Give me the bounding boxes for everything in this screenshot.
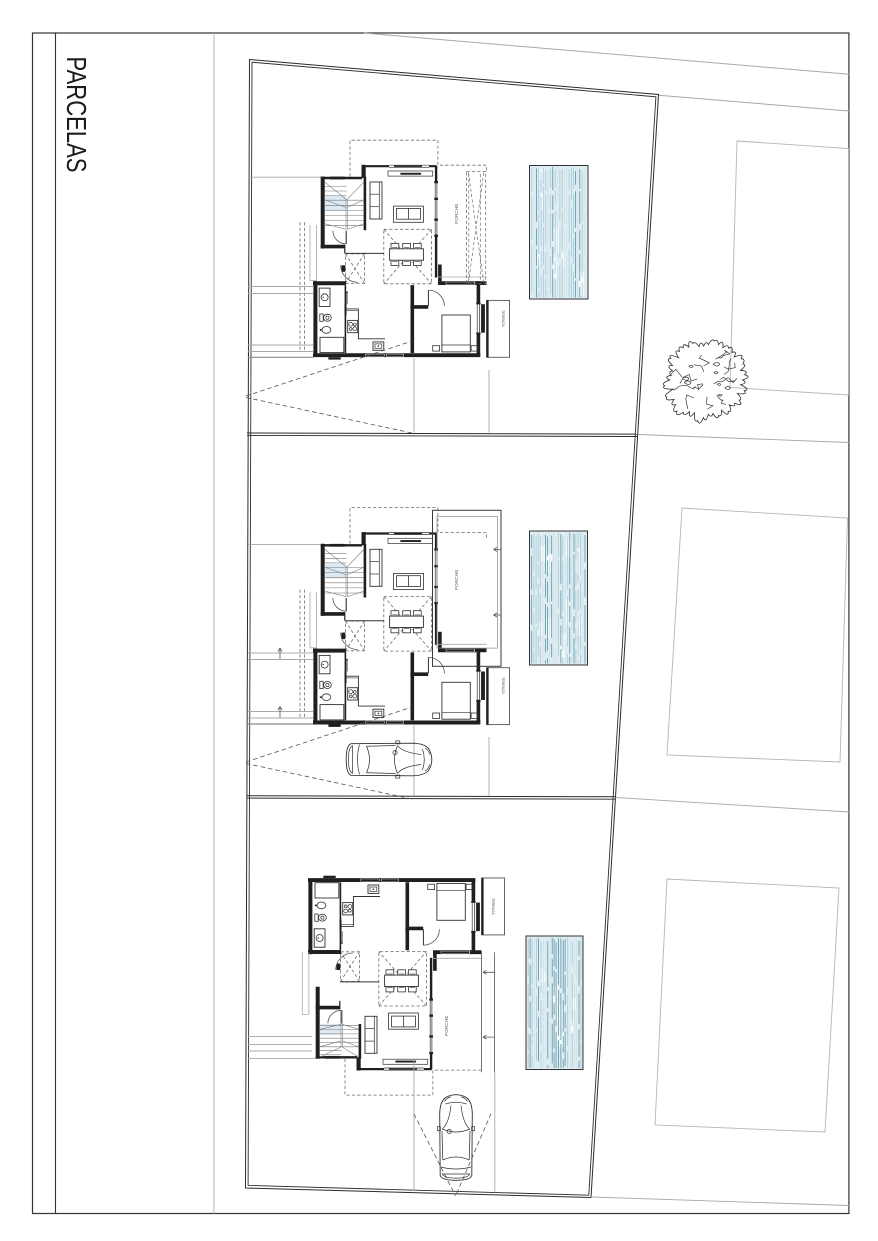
- svg-text:PARCELAS: PARCELAS: [61, 57, 92, 173]
- svg-text:PORCHE: PORCHE: [454, 203, 459, 224]
- svg-text:TERRAZA: TERRAZA: [501, 310, 505, 327]
- svg-text:TERRAZA: TERRAZA: [491, 898, 495, 915]
- svg-text:PORCHE: PORCHE: [444, 1015, 449, 1036]
- svg-text:TERRAZA: TERRAZA: [501, 677, 505, 694]
- svg-text:PORCHE: PORCHE: [454, 569, 459, 590]
